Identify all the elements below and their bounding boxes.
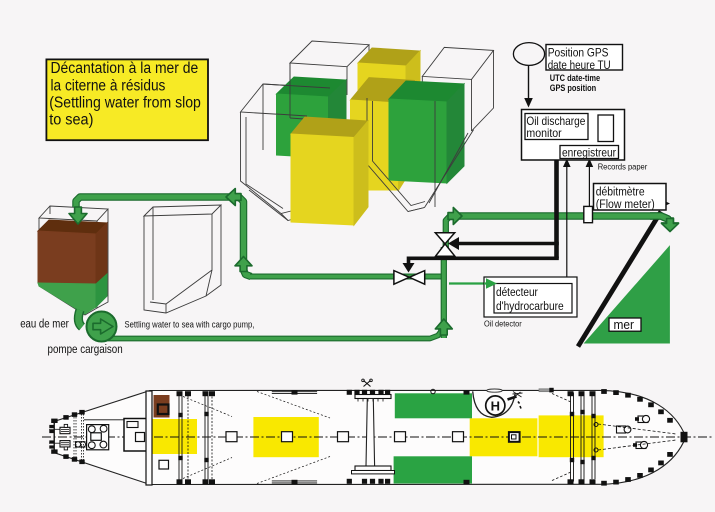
svg-text:UTC date-time: UTC date-time [550, 73, 601, 83]
svg-text:Records paper: Records paper [598, 162, 648, 172]
svg-text:H: H [491, 398, 500, 413]
svg-text:Settling water to sea with car: Settling water to sea with cargo pump, [125, 320, 255, 330]
svg-text:date heure TU: date heure TU [548, 58, 611, 72]
svg-text:Oil detector: Oil detector [484, 319, 522, 329]
svg-text:mer: mer [614, 318, 635, 332]
svg-text:monitor: monitor [526, 126, 561, 140]
svg-text:eau de mer: eau de mer [20, 316, 69, 330]
svg-text:d'hydrocarbure: d'hydrocarbure [496, 299, 564, 313]
svg-text:enregistreur: enregistreur [562, 145, 616, 159]
svg-text:(Settling water from slop: (Settling water from slop [49, 94, 201, 111]
svg-text:la citerne à résidus: la citerne à résidus [51, 77, 166, 94]
svg-text:pompe cargaison: pompe cargaison [48, 342, 123, 356]
svg-text:GPS position: GPS position [550, 83, 597, 93]
svg-text:Décantation à la mer de: Décantation à la mer de [51, 60, 199, 77]
svg-text:(Flow meter): (Flow meter) [596, 197, 655, 211]
svg-text:détecteur: détecteur [496, 285, 538, 299]
svg-text:to sea): to sea) [49, 112, 93, 129]
